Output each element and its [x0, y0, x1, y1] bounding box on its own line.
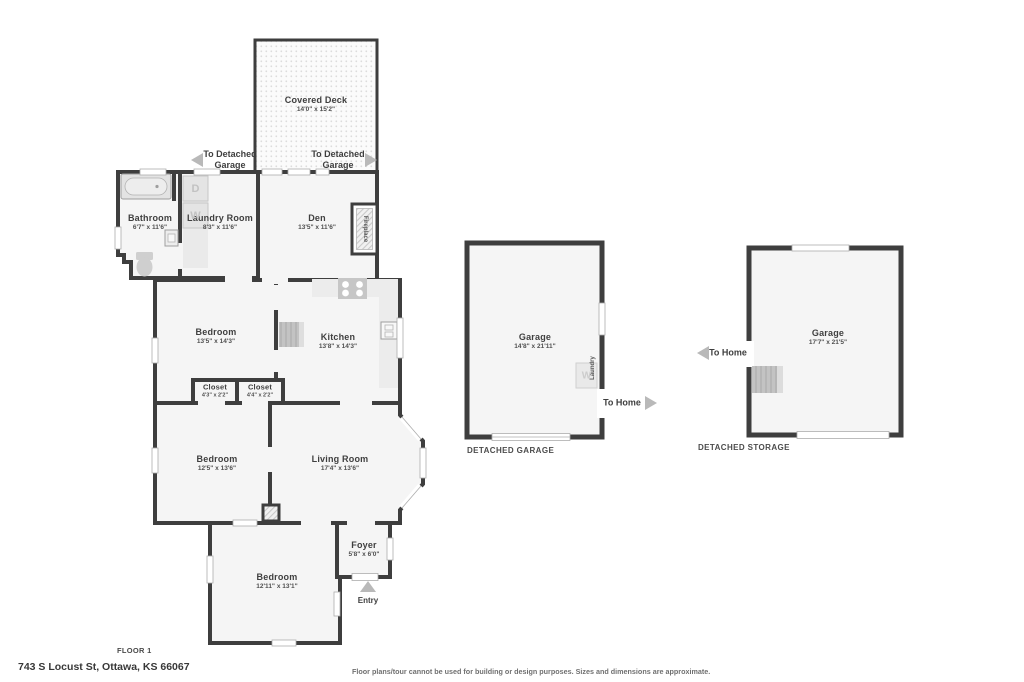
- entry-label: Entry: [358, 596, 378, 606]
- to-home-right-label: To Home: [709, 347, 747, 358]
- nav-line: Garage: [311, 160, 364, 171]
- toilet-icon: [136, 252, 153, 277]
- room-name: Den: [298, 214, 336, 224]
- room-name: Closet: [202, 383, 228, 391]
- floor-plan-page: Covered Deck 14'0" x 15'2" Bathroom 6'7"…: [0, 0, 1024, 682]
- room-name: Bedroom: [197, 455, 238, 465]
- room-name: Kitchen: [319, 333, 357, 343]
- dryer-letter: D: [192, 183, 200, 195]
- garage-washer-letter: W: [582, 370, 591, 381]
- floor-plan-canvas: [0, 0, 1024, 682]
- to-home-mid-label: To Home: [603, 397, 641, 408]
- room-name: Foyer: [349, 541, 380, 551]
- room-dims: 13'8" x 14'3": [319, 344, 357, 351]
- room-name: Garage: [809, 329, 847, 339]
- room-name: Covered Deck: [285, 96, 347, 106]
- nav-line: To Detached: [311, 149, 364, 160]
- fireplace-label: Fireplace: [362, 216, 368, 242]
- room-name: Bedroom: [256, 573, 297, 583]
- room-dims: 13'5" x 14'3": [196, 339, 237, 346]
- room-label-bathroom: Bathroom 6'7" x 11'6": [128, 214, 172, 232]
- room-label-den: Den 13'5" x 11'6": [298, 214, 336, 232]
- garage-door: [492, 434, 570, 441]
- storage-stairs: [752, 366, 783, 393]
- room-dims: 5'8" x 6'0": [349, 552, 380, 559]
- address-text: 743 S Locust St, Ottawa, KS 66067: [18, 661, 190, 673]
- arrow-left-icon: [191, 153, 203, 167]
- kitchen-sink-icon: [381, 322, 397, 339]
- garage-window: [599, 303, 605, 335]
- to-detached-garage-right-label: To Detached Garage: [311, 149, 364, 172]
- room-dims: 12'11" x 13'1": [256, 584, 297, 591]
- arrow-up-icon: [360, 581, 376, 592]
- room-label-bedroom-bottom: Bedroom 12'11" x 13'1": [256, 573, 297, 591]
- room-dims: 13'5" x 11'6": [298, 225, 336, 232]
- room-dims: 4'3" x 2'2": [202, 393, 228, 399]
- arrow-left-icon: [697, 346, 709, 360]
- room-label-closet-left: Closet 4'3" x 2'2": [202, 383, 228, 398]
- chimney-icon: [279, 322, 304, 347]
- flue-icon: [263, 505, 279, 521]
- room-label-closet-right: Closet 4'4" x 2'2": [247, 383, 273, 398]
- detached-storage-caption: DETACHED STORAGE: [698, 443, 790, 452]
- storage-window: [792, 245, 849, 251]
- detached-garage-caption: DETACHED GARAGE: [467, 446, 554, 455]
- room-name: Bathroom: [128, 214, 172, 224]
- room-dims: 12'5" x 13'6": [197, 466, 238, 473]
- nav-line: Garage: [203, 160, 256, 171]
- room-dims: 17'4" x 13'6": [312, 466, 369, 473]
- room-label-kitchen: Kitchen 13'8" x 14'3": [319, 333, 357, 351]
- room-dims: 14'8" x 21'11": [514, 344, 555, 351]
- room-label-detached-garage: Garage 14'8" x 21'11": [514, 333, 555, 351]
- arrow-right-icon: [645, 396, 657, 410]
- washer-letter: W: [190, 210, 200, 222]
- floor-label: FLOOR 1: [117, 646, 152, 655]
- room-label-living-room: Living Room 17'4" x 13'6": [312, 455, 369, 473]
- room-label-bedroom-top: Bedroom 13'5" x 14'3": [196, 328, 237, 346]
- to-detached-garage-left-label: To Detached Garage: [203, 149, 256, 172]
- room-dims: 6'7" x 11'6": [128, 225, 172, 232]
- stove-icon: [338, 278, 367, 299]
- room-name: Garage: [514, 333, 555, 343]
- room-dims: 8'3" x 11'6": [187, 225, 253, 232]
- room-name: Closet: [247, 383, 273, 391]
- room-dims: 17'7" x 21'5": [809, 340, 847, 347]
- room-dims: 4'4" x 2'2": [247, 393, 273, 399]
- disclaimer-text: Floor plans/tour cannot be used for buil…: [352, 667, 710, 676]
- room-label-detached-storage: Garage 17'7" x 21'5": [809, 329, 847, 347]
- room-name: Living Room: [312, 455, 369, 465]
- room-label-bedroom-mid: Bedroom 12'5" x 13'6": [197, 455, 238, 473]
- room-dims: 14'0" x 15'2": [285, 107, 347, 114]
- room-label-foyer: Foyer 5'8" x 6'0": [349, 541, 380, 559]
- room-name: Bedroom: [196, 328, 237, 338]
- storage-door: [797, 432, 889, 439]
- room-label-covered-deck: Covered Deck 14'0" x 15'2": [285, 96, 347, 114]
- nav-line: To Detached: [203, 149, 256, 160]
